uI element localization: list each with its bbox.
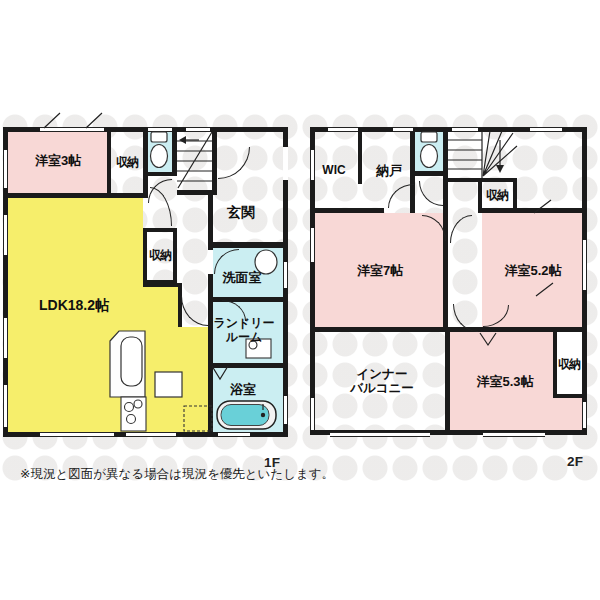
window (530, 127, 562, 132)
wall (107, 132, 111, 193)
wall (478, 208, 587, 213)
room-label-closet-right: 収納 (558, 358, 580, 372)
washroom-opening (208, 250, 213, 274)
window (283, 262, 288, 288)
wall (358, 132, 362, 184)
window (218, 432, 250, 437)
wall (415, 171, 443, 176)
wall (208, 363, 287, 368)
wall (310, 327, 448, 332)
wall (513, 178, 517, 212)
floor-label-2f: 2F (567, 454, 583, 469)
window (3, 150, 8, 188)
room-toilet-1f (148, 131, 172, 172)
window (393, 127, 413, 132)
window (3, 318, 8, 358)
wall (553, 394, 587, 398)
balcony-line1: インナー (357, 367, 408, 381)
wall (143, 283, 182, 287)
window (3, 215, 8, 255)
window (283, 396, 288, 424)
wall (208, 195, 213, 437)
room-label-closet-top-2f: 収納 (486, 189, 508, 203)
room-toilet-2f (415, 131, 443, 171)
wall (3, 193, 148, 198)
wall (445, 332, 450, 435)
entrance-opening (283, 147, 288, 180)
room-ldk-main (8, 198, 143, 432)
window (310, 228, 315, 262)
room-ldk-ext2 (178, 327, 208, 432)
window (582, 240, 587, 290)
room-label-bedroom7: 洋室7帖 (357, 264, 403, 279)
disclaimer-text: ※現況と図面が異なる場合は現況を優先といたします。 (20, 466, 334, 483)
window (310, 398, 315, 430)
room-label-closet-mid: 収納 (149, 249, 171, 263)
window (483, 432, 545, 437)
window (328, 127, 358, 132)
wall (208, 297, 287, 302)
window (148, 127, 172, 132)
window (330, 432, 430, 437)
wall (148, 172, 174, 176)
wall (178, 287, 182, 327)
window (186, 127, 210, 132)
balcony-line2: バルコニー (350, 381, 414, 395)
wall (448, 178, 517, 182)
wall (143, 127, 148, 198)
wall (172, 131, 177, 176)
room-ldk-ext1 (143, 287, 178, 432)
window (126, 432, 176, 437)
window (40, 127, 104, 132)
window (582, 402, 587, 428)
room-label-washroom: 洗面室 (223, 271, 262, 286)
window (452, 127, 478, 132)
floorplan-image: 洋室3帖 収納 玄関 収納 LDK18.2帖 洗面室 ランドリー ルーム 浴室 … (0, 0, 600, 600)
room-label-entrance: 玄関 (227, 204, 255, 220)
room-label-inner-balcony: インナー バルコニー (350, 367, 414, 396)
wall (208, 242, 287, 248)
room-bathroom (213, 368, 283, 432)
wall (362, 208, 384, 213)
wall (212, 127, 217, 195)
wall (478, 178, 482, 212)
room-label-storeroom: 納戸 (376, 164, 402, 179)
room-label-bedroom3: 洋室3帖 (35, 154, 81, 169)
room-label-bathroom: 浴室 (230, 383, 256, 398)
window (310, 150, 315, 180)
window (40, 432, 114, 437)
wall (310, 208, 362, 213)
laundry-line1: ランドリー (213, 316, 274, 330)
laundry-line2: ルーム (226, 330, 263, 344)
wall (553, 332, 557, 398)
room-label-wic: WIC (322, 164, 345, 178)
room-label-laundry: ランドリー ルーム (213, 317, 274, 345)
window (3, 385, 8, 427)
room-label-bedroom53: 洋室5.3帖 (476, 375, 533, 390)
room-label-ldk: LDK18.2帖 (39, 297, 109, 313)
room-label-closet-top-1f: 収納 (116, 156, 138, 170)
room-label-bedroom52: 洋室5.2帖 (504, 264, 561, 279)
